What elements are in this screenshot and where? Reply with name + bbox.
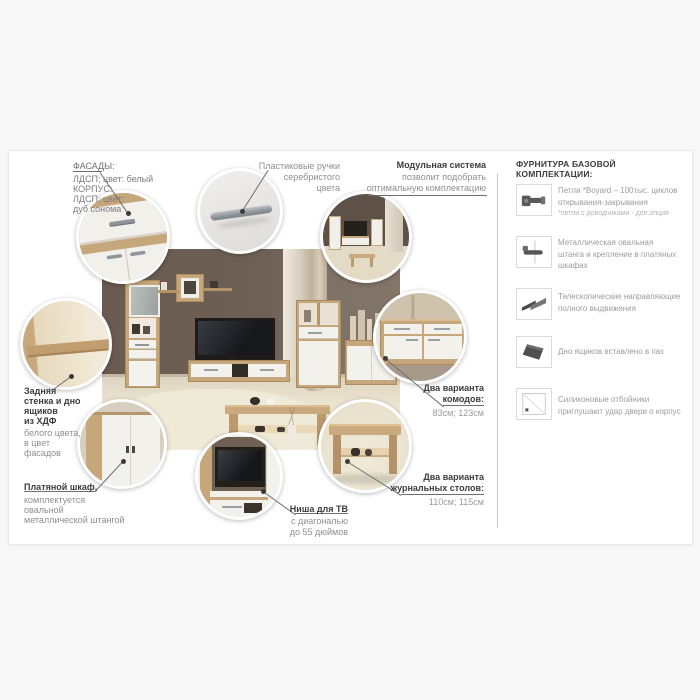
door-handle [308,332,322,334]
callout-circle-wardrobe [77,399,167,489]
modular-body: позволит подобрать оптимальную комплекта… [356,172,486,194]
handles-dot [240,209,245,214]
dressers-dot [383,356,388,361]
door-split [130,415,131,486]
silicone-bumper-icon-glyph [519,391,549,417]
table-top [329,424,401,435]
hinge-icon [516,184,552,216]
hardware-item-note: *петли с доводчиками - доп.опция [558,209,688,218]
hinge-icon-glyph [519,187,549,213]
interior-closeup [20,298,112,390]
shelf-decor [255,426,265,432]
back-panel-dot [69,374,74,379]
cabinet-door [129,361,156,386]
wardrobe-closeup [80,402,164,486]
mini-highboard [371,219,383,246]
tv-niche-body: с диагональю до 55 дюймов [268,516,348,537]
plant-vase [288,425,296,443]
shelf-decor [365,449,372,456]
shelf-decor [277,427,285,432]
door-handle [126,446,129,453]
glass-door [129,285,160,317]
vase [358,310,365,340]
door-split [371,346,372,380]
modular-title: Модульная система [366,160,486,171]
photo-frame-decor [132,324,140,334]
wardrobe-title: Платяной шкаф, [24,482,97,493]
shelf-decor [304,310,311,322]
callout-circle-interior [20,298,112,390]
dressers-title: Два варианта комодов: [394,383,484,405]
handles-label: Пластиковые ручки серебристого цвета [250,161,340,194]
cabinet-door [299,341,338,385]
table-leg [389,435,397,474]
telescopic-slide-icon [516,288,552,320]
tv-stand [188,360,290,382]
tv [195,318,275,360]
coffee-tables-value: 110см; 115см [384,497,484,508]
vase [367,319,372,340]
dressers-underline [443,405,484,406]
mini-tv [344,221,367,236]
wardrobe-body: комплектуется овальной металлической шта… [24,495,125,525]
hardware-item-text: Металлическая овальная штанга и креплени… [558,237,692,272]
back-panel-title: Задняя стенка и дно ящиков из ХДФ [24,386,81,426]
drawer-bottom-icon-glyph [519,339,549,365]
dresser-closeup [376,293,464,381]
tv-niche-title: Ниша для ТВ [268,504,348,515]
door-handle [406,339,418,341]
hardware-item-text: Силиконовые отбойники приглушают удар дв… [558,394,692,417]
door-handle [135,344,149,346]
mini-table-leg [370,258,373,267]
facades-body: ЛДСП; цвет: белый КОРПУС: ЛДСП; цвет: ду… [73,174,153,214]
dressers-value: 83см; 123см [394,408,484,419]
hardware-item-text: Телескопические направляющие полного выд… [558,291,692,314]
tall-cabinet [125,280,160,388]
tv-screen [198,321,272,355]
mini-curtain [385,194,403,252]
wardrobe-rod-icon-glyph [519,239,549,265]
door-handle [132,446,135,453]
wardrobe-dot [121,459,126,464]
wardrobe-rod-icon [516,236,552,268]
hardware-header: ФУРНИТУРА БАЗОВОЙ КОМПЛЕКТАЦИИ: [516,159,686,179]
picture [184,281,196,294]
hardware-item-text: Петли *Boyard – 100тыс. циклов открывани… [558,185,688,208]
table-top [225,405,330,414]
drawer-niche [244,503,262,513]
shelf-decor [351,448,360,456]
modular-underline [368,195,487,196]
silicone-bumper-icon [516,388,552,420]
grass-decor [394,295,434,321]
highboard-cabinet [296,300,341,388]
mini-table-leg [351,258,354,267]
cabinet-doors [76,240,170,284]
shelf-decor [161,282,167,290]
photo-frame-decor [143,326,150,334]
komod [380,319,466,365]
furniture-infographic: ФАСАДЫ: ЛДСП; цвет: белый КОРПУС: ЛДСП; … [0,0,700,700]
tv [215,447,265,487]
mini-tv-stand [342,236,369,245]
drawer-handle [204,369,218,371]
drawer-front [129,350,156,359]
vertical-divider [497,173,498,528]
hardware-item-text: Дно ящиков вставлено в паз [558,346,692,358]
tv-niche-dot [261,489,266,494]
shelf-decor [210,281,218,288]
table-leg [333,435,341,474]
drawer-bottom-icon [516,336,552,368]
modular-room [323,194,409,280]
coffee-tables-title: Два варианта журнальных столов: [384,472,484,494]
drawer-handle [434,328,450,330]
coffee-tables-dot [345,459,350,464]
callout-circle-dresser [373,290,467,384]
shelf-divider [317,303,320,325]
mini-cabinet [329,216,341,250]
door-handle [428,339,440,341]
drawer-handle [260,369,274,371]
plant-twigs [286,407,298,425]
tv-screen [218,450,262,481]
tv-stand-niche [232,364,248,377]
callout-circle-modular [320,191,412,283]
wall-shelf [204,288,232,291]
drawer-handle [394,328,410,330]
vase [350,316,356,340]
telescopic-slide-icon-glyph [519,291,549,317]
wardrobe-side [86,415,102,486]
facades-title: ФАСАДЫ: [73,161,115,172]
table-decor-dark [250,397,260,405]
back-panel-body: белого цвета, в цвет фасадов [24,428,81,458]
wall-shelf [158,290,180,293]
drawer-handle [222,506,242,508]
coffee-tables-underline [401,494,484,495]
